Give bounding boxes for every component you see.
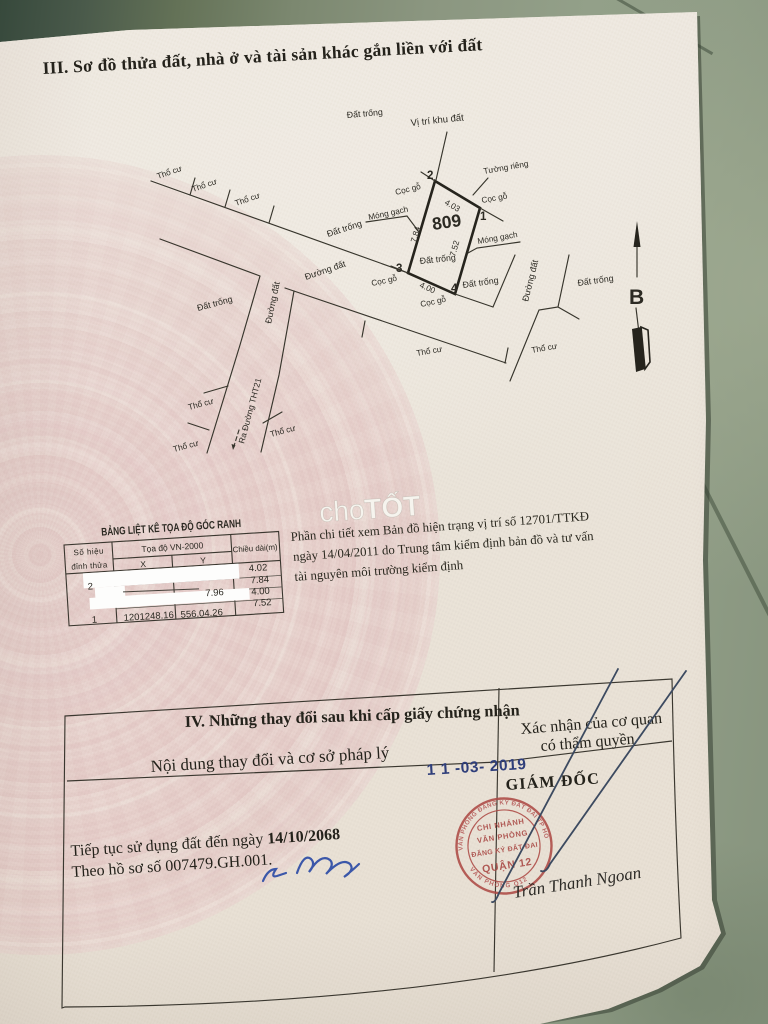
svg-text:1201248.16: 1201248.16 bbox=[123, 610, 174, 624]
svg-text:809: 809 bbox=[431, 210, 463, 234]
svg-text:3: 3 bbox=[396, 263, 402, 275]
svg-text:Thổ cư: Thổ cư bbox=[155, 163, 183, 181]
svg-text:Thổ cư: Thổ cư bbox=[416, 344, 444, 358]
svg-text:2: 2 bbox=[87, 581, 93, 592]
svg-text:Đất trống: Đất trống bbox=[326, 218, 364, 239]
svg-text:4.00: 4.00 bbox=[251, 586, 270, 598]
svg-text:4.02: 4.02 bbox=[249, 562, 268, 574]
svg-text:Cọc gỗ: Cọc gỗ bbox=[370, 273, 398, 288]
svg-text:7.52: 7.52 bbox=[253, 597, 272, 609]
svg-text:Thổ cư: Thổ cư bbox=[269, 422, 297, 439]
svg-text:7.96: 7.96 bbox=[205, 587, 224, 599]
svg-text:7.84: 7.84 bbox=[250, 574, 269, 586]
svg-text:Y: Y bbox=[200, 555, 207, 565]
svg-text:Thổ cư: Thổ cư bbox=[187, 395, 215, 412]
svg-text:1 1 -03- 2019: 1 1 -03- 2019 bbox=[426, 756, 527, 779]
svg-text:QUẬN 12: QUẬN 12 bbox=[481, 855, 533, 876]
svg-text:Đất trống: Đất trống bbox=[346, 107, 383, 120]
svg-text:556.04.26: 556.04.26 bbox=[180, 607, 223, 621]
svg-text:Thổ cư: Thổ cư bbox=[233, 190, 261, 208]
svg-text:đỉnh thửa: đỉnh thửa bbox=[71, 560, 108, 571]
svg-text:Đất trống: Đất trống bbox=[196, 294, 234, 313]
svg-text:Tọa độ VN-2000: Tọa độ VN-2000 bbox=[141, 540, 204, 554]
svg-text:III. Sơ đồ thửa đất, nhà ở và: III. Sơ đồ thửa đất, nhà ở và tài sản kh… bbox=[42, 34, 483, 78]
svg-text:Thổ cư: Thổ cư bbox=[172, 437, 200, 454]
svg-text:Đường đất: Đường đất bbox=[303, 258, 347, 281]
svg-text:Cọc gỗ: Cọc gỗ bbox=[481, 191, 509, 205]
svg-text:Móng gạch: Móng gạch bbox=[368, 205, 410, 222]
svg-text:Đất trống: Đất trống bbox=[462, 275, 499, 290]
svg-text:Đường đất: Đường đất bbox=[263, 280, 282, 324]
svg-text:4.00: 4.00 bbox=[418, 280, 437, 296]
svg-text:7.84: 7.84 bbox=[408, 225, 422, 244]
svg-text:B: B bbox=[629, 286, 644, 309]
svg-text:Đường đất: Đường đất bbox=[520, 258, 540, 302]
svg-text:2: 2 bbox=[427, 170, 433, 182]
svg-text:Tường riêng: Tường riêng bbox=[483, 159, 530, 176]
svg-text:Số hiệu: Số hiệu bbox=[73, 547, 104, 558]
svg-text:Cọc gỗ: Cọc gỗ bbox=[419, 294, 447, 309]
svg-text:Vị trí khu đất: Vị trí khu đất bbox=[410, 112, 465, 129]
svg-text:Đất trống: Đất trống bbox=[577, 273, 614, 288]
svg-text:1: 1 bbox=[91, 615, 97, 626]
svg-text:Ra Đường THT21: Ra Đường THT21 bbox=[236, 377, 263, 445]
svg-text:1: 1 bbox=[480, 211, 487, 223]
svg-text:Cọc gỗ: Cọc gỗ bbox=[394, 181, 422, 197]
svg-text:IV. Những thay đổi sau khi cấp: IV. Những thay đổi sau khi cấp giấy chứn… bbox=[184, 700, 520, 731]
svg-text:Nội dung thay đổi và cơ sở phá: Nội dung thay đổi và cơ sở pháp lý bbox=[150, 743, 390, 776]
svg-text:Chiều dài(m): Chiều dài(m) bbox=[232, 543, 278, 555]
svg-text:X: X bbox=[140, 559, 147, 569]
svg-text:Thổ cư: Thổ cư bbox=[531, 341, 559, 355]
svg-text:4: 4 bbox=[451, 283, 458, 295]
svg-text:7.52: 7.52 bbox=[447, 239, 461, 258]
